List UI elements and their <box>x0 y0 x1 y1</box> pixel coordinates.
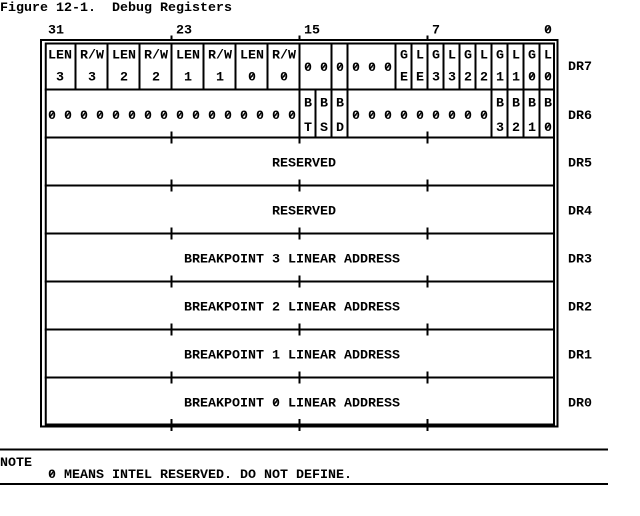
svg-text:L: L <box>480 49 488 64</box>
svg-text:G: G <box>464 49 472 64</box>
svg-text:B: B <box>544 97 552 112</box>
svg-text:S: S <box>320 121 328 136</box>
svg-text:R/W: R/W <box>208 49 232 64</box>
svg-text:BREAKPOINT 3 LINEAR ADDRESS: BREAKPOINT 3 LINEAR ADDRESS <box>184 253 400 268</box>
svg-text:2: 2 <box>120 71 128 86</box>
svg-text:0: 0 <box>48 109 56 124</box>
svg-text:E: E <box>400 71 408 86</box>
svg-text:DR2: DR2 <box>568 301 592 316</box>
svg-text:T: T <box>304 121 312 136</box>
svg-text:3: 3 <box>448 71 456 86</box>
svg-text:0: 0 <box>280 71 288 86</box>
svg-text:B: B <box>512 97 520 112</box>
svg-text:0: 0 <box>336 61 344 76</box>
svg-text:0: 0 <box>464 109 472 124</box>
svg-text:R/W: R/W <box>144 49 168 64</box>
svg-text:0: 0 <box>144 109 152 124</box>
svg-text:Figure 12-1. Debug Registers: Figure 12-1. Debug Registers <box>0 1 232 16</box>
svg-text:0: 0 <box>248 71 256 86</box>
svg-text:L: L <box>512 49 520 64</box>
svg-text:BREAKPOINT 1 LINEAR ADDRESS: BREAKPOINT 1 LINEAR ADDRESS <box>184 349 400 364</box>
svg-text:DR3: DR3 <box>568 253 592 268</box>
svg-text:0: 0 <box>432 109 440 124</box>
svg-text:LEN: LEN <box>112 49 136 64</box>
svg-text:2: 2 <box>464 71 472 86</box>
svg-text:31: 31 <box>48 24 64 39</box>
svg-text:15: 15 <box>304 24 320 39</box>
svg-text:LEN: LEN <box>240 49 264 64</box>
svg-text:B: B <box>320 97 328 112</box>
svg-text:0: 0 <box>368 61 376 76</box>
svg-text:NOTE: NOTE <box>0 456 32 471</box>
svg-text:0: 0 <box>272 109 280 124</box>
svg-text:0: 0 <box>368 109 376 124</box>
svg-text:0: 0 <box>352 61 360 76</box>
svg-text:3: 3 <box>56 71 64 86</box>
svg-text:DR5: DR5 <box>568 157 592 172</box>
svg-text:1: 1 <box>512 71 520 86</box>
svg-text:1: 1 <box>496 71 504 86</box>
svg-text:E: E <box>416 71 424 86</box>
svg-text:0 MEANS INTEL RESERVED. DO NOT: 0 MEANS INTEL RESERVED. DO NOT DEFINE. <box>48 468 352 483</box>
svg-text:23: 23 <box>176 24 192 39</box>
svg-text:7: 7 <box>432 24 440 39</box>
svg-text:0: 0 <box>416 109 424 124</box>
svg-text:L: L <box>448 49 456 64</box>
svg-text:G: G <box>432 49 440 64</box>
svg-text:D: D <box>336 121 344 136</box>
svg-text:0: 0 <box>352 109 360 124</box>
svg-text:RESERVED: RESERVED <box>272 157 336 172</box>
svg-text:0: 0 <box>224 109 232 124</box>
svg-text:0: 0 <box>208 109 216 124</box>
svg-text:1: 1 <box>216 71 224 86</box>
svg-text:0: 0 <box>112 109 120 124</box>
svg-text:0: 0 <box>480 109 488 124</box>
svg-text:0: 0 <box>64 109 72 124</box>
svg-text:0: 0 <box>384 109 392 124</box>
svg-text:2: 2 <box>480 71 488 86</box>
svg-text:L: L <box>416 49 424 64</box>
svg-text:1: 1 <box>184 71 192 86</box>
svg-text:2: 2 <box>512 121 520 136</box>
svg-text:L: L <box>544 49 552 64</box>
svg-text:G: G <box>400 49 408 64</box>
svg-text:RESERVED: RESERVED <box>272 205 336 220</box>
svg-text:B: B <box>528 97 536 112</box>
svg-text:0: 0 <box>128 109 136 124</box>
svg-text:0: 0 <box>528 71 536 86</box>
svg-text:3: 3 <box>496 121 504 136</box>
svg-text:0: 0 <box>176 109 184 124</box>
svg-text:0: 0 <box>400 109 408 124</box>
svg-text:0: 0 <box>80 109 88 124</box>
svg-text:0: 0 <box>288 109 296 124</box>
svg-text:2: 2 <box>152 71 160 86</box>
svg-text:B: B <box>496 97 504 112</box>
svg-text:0: 0 <box>544 121 552 136</box>
svg-text:R/W: R/W <box>80 49 104 64</box>
svg-text:BREAKPOINT 0 LINEAR ADDRESS: BREAKPOINT 0 LINEAR ADDRESS <box>184 397 400 412</box>
svg-text:0: 0 <box>192 109 200 124</box>
svg-text:DR0: DR0 <box>568 397 592 412</box>
svg-text:0: 0 <box>448 109 456 124</box>
svg-text:1: 1 <box>528 121 536 136</box>
svg-text:B: B <box>304 97 312 112</box>
svg-text:LEN: LEN <box>48 49 72 64</box>
svg-text:0: 0 <box>320 61 328 76</box>
svg-text:DR1: DR1 <box>568 349 592 364</box>
svg-text:0: 0 <box>544 71 552 86</box>
svg-text:DR4: DR4 <box>568 205 592 220</box>
svg-text:0: 0 <box>160 109 168 124</box>
svg-text:3: 3 <box>432 71 440 86</box>
svg-text:R/W: R/W <box>272 49 296 64</box>
svg-text:0: 0 <box>544 24 552 39</box>
svg-text:G: G <box>528 49 536 64</box>
svg-text:0: 0 <box>96 109 104 124</box>
svg-text:DR7: DR7 <box>568 60 592 75</box>
svg-text:G: G <box>496 49 504 64</box>
svg-text:0: 0 <box>304 61 312 76</box>
svg-text:0: 0 <box>384 61 392 76</box>
svg-text:0: 0 <box>240 109 248 124</box>
svg-text:B: B <box>336 97 344 112</box>
svg-text:0: 0 <box>256 109 264 124</box>
svg-text:DR6: DR6 <box>568 109 592 124</box>
svg-text:BREAKPOINT 2 LINEAR ADDRESS: BREAKPOINT 2 LINEAR ADDRESS <box>184 301 400 316</box>
svg-text:3: 3 <box>88 71 96 86</box>
svg-text:LEN: LEN <box>176 49 200 64</box>
